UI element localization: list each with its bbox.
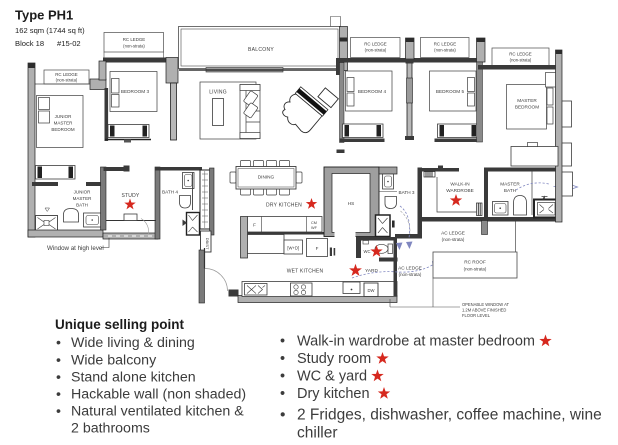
svg-text:BALCONY: BALCONY xyxy=(248,47,274,53)
svg-text:RC LEDGE: RC LEDGE xyxy=(123,37,146,42)
svg-text:(non-strata): (non-strata) xyxy=(464,267,487,272)
svg-text:WARDROBE: WARDROBE xyxy=(446,188,473,193)
svg-text:STUDY: STUDY xyxy=(122,193,140,199)
svg-text:WF: WF xyxy=(311,226,318,230)
svg-text:DB/ST: DB/ST xyxy=(205,238,210,250)
svg-text:Type PH1: Type PH1 xyxy=(15,8,73,23)
svg-text:2 Fridges, dishwasher, coffee: 2 Fridges, dishwasher, coffee machine, w… xyxy=(297,407,602,424)
svg-text:RC LEDGE: RC LEDGE xyxy=(55,72,78,77)
svg-text:#15-02: #15-02 xyxy=(57,39,81,48)
svg-text:BATH: BATH xyxy=(76,203,88,208)
svg-text:•: • xyxy=(56,370,61,386)
svg-text:Wide living & dining: Wide living & dining xyxy=(71,335,195,351)
svg-text:DINING: DINING xyxy=(258,175,275,180)
svg-text:RC LEDGE: RC LEDGE xyxy=(434,42,457,47)
svg-text:•: • xyxy=(56,387,61,403)
svg-text:RC LEDGE: RC LEDGE xyxy=(509,52,532,57)
svg-text:BEDROOM 4: BEDROOM 4 xyxy=(358,89,387,94)
svg-text:WC: WC xyxy=(364,249,371,254)
svg-text:RC ROOF: RC ROOF xyxy=(464,260,486,265)
svg-text:MASTER: MASTER xyxy=(517,98,537,103)
svg-text:MASTER: MASTER xyxy=(73,196,93,201)
svg-text:(non-strata): (non-strata) xyxy=(56,78,78,83)
svg-text:DRY KITCHEN: DRY KITCHEN xyxy=(266,203,302,209)
svg-text:JUNIOR: JUNIOR xyxy=(55,114,73,119)
svg-text:162 sqm (1744 sq ft): 162 sqm (1744 sq ft) xyxy=(15,26,85,35)
svg-text:[W+D]: [W+D] xyxy=(287,246,299,251)
svg-text:•: • xyxy=(280,386,285,402)
svg-text:Wide balcony: Wide balcony xyxy=(71,353,157,369)
svg-text:•: • xyxy=(280,369,285,385)
svg-text:AC LEDGE: AC LEDGE xyxy=(398,266,422,271)
svg-text:•: • xyxy=(56,335,61,351)
svg-text:•: • xyxy=(280,351,285,367)
svg-text:MASTER: MASTER xyxy=(54,121,74,126)
svg-text:BATH 3: BATH 3 xyxy=(398,190,414,195)
svg-text:Block 18: Block 18 xyxy=(15,39,44,48)
svg-text:DW: DW xyxy=(368,288,375,293)
svg-text:MASTER: MASTER xyxy=(500,182,520,187)
svg-text:BEDROOM: BEDROOM xyxy=(51,127,75,132)
svg-text:Unique selling point: Unique selling point xyxy=(55,317,184,332)
svg-text:HS: HS xyxy=(348,201,355,206)
svg-text:BATH: BATH xyxy=(504,188,516,193)
svg-text:Natural ventilated kitchen &: Natural ventilated kitchen & xyxy=(71,404,244,420)
svg-text:F: F xyxy=(316,246,319,251)
svg-text:BEDROOM 5: BEDROOM 5 xyxy=(436,89,465,94)
svg-text:•: • xyxy=(56,404,61,420)
svg-text:AC LEDGE: AC LEDGE xyxy=(441,231,465,236)
svg-text:(non-strata): (non-strata) xyxy=(510,58,532,63)
svg-text:•: • xyxy=(280,334,285,350)
svg-text:JUNIOR: JUNIOR xyxy=(74,190,92,195)
svg-text:(non-strata): (non-strata) xyxy=(434,48,456,53)
svg-text:LIVING: LIVING xyxy=(209,90,227,96)
svg-text:OPENABLE WINDOW AT: OPENABLE WINDOW AT xyxy=(462,302,510,307)
svg-text:CM: CM xyxy=(311,221,317,225)
svg-text:•: • xyxy=(280,407,285,424)
svg-text:Study room: Study room xyxy=(297,351,371,367)
svg-text:(non-strata): (non-strata) xyxy=(399,272,422,277)
svg-text:chiller: chiller xyxy=(297,425,337,442)
svg-text:(non-strata): (non-strata) xyxy=(365,48,387,53)
svg-text:WET KITCHEN: WET KITCHEN xyxy=(287,269,324,275)
svg-text:WC & yard: WC & yard xyxy=(297,369,367,385)
svg-text:F: F xyxy=(253,223,256,228)
svg-text:Window at high level: Window at high level xyxy=(47,245,104,252)
svg-text:RC LEDGE: RC LEDGE xyxy=(364,42,387,47)
svg-text:BATH 4: BATH 4 xyxy=(162,190,178,195)
svg-text:WALK-IN: WALK-IN xyxy=(450,182,469,187)
svg-text:(non-strata): (non-strata) xyxy=(442,237,465,242)
svg-text:1.2M ABOVE FINISHED: 1.2M ABOVE FINISHED xyxy=(462,308,506,313)
svg-text:Stand alone kitchen: Stand alone kitchen xyxy=(71,370,196,386)
svg-text:2 bathrooms: 2 bathrooms xyxy=(71,421,150,437)
svg-text:Dry kitchen: Dry kitchen xyxy=(297,386,370,402)
svg-text:•: • xyxy=(56,353,61,369)
svg-text:Hackable wall (non shaded): Hackable wall (non shaded) xyxy=(71,387,246,403)
svg-text:FLOOR LEVEL: FLOOR LEVEL xyxy=(462,313,491,318)
svg-text:BEDROOM 3: BEDROOM 3 xyxy=(121,89,150,94)
svg-text:Walk-in wardrobe at master bed: Walk-in wardrobe at master bedroom xyxy=(297,334,535,350)
svg-text:BEDROOM: BEDROOM xyxy=(515,105,539,110)
svg-text:(non-strata): (non-strata) xyxy=(123,44,145,49)
